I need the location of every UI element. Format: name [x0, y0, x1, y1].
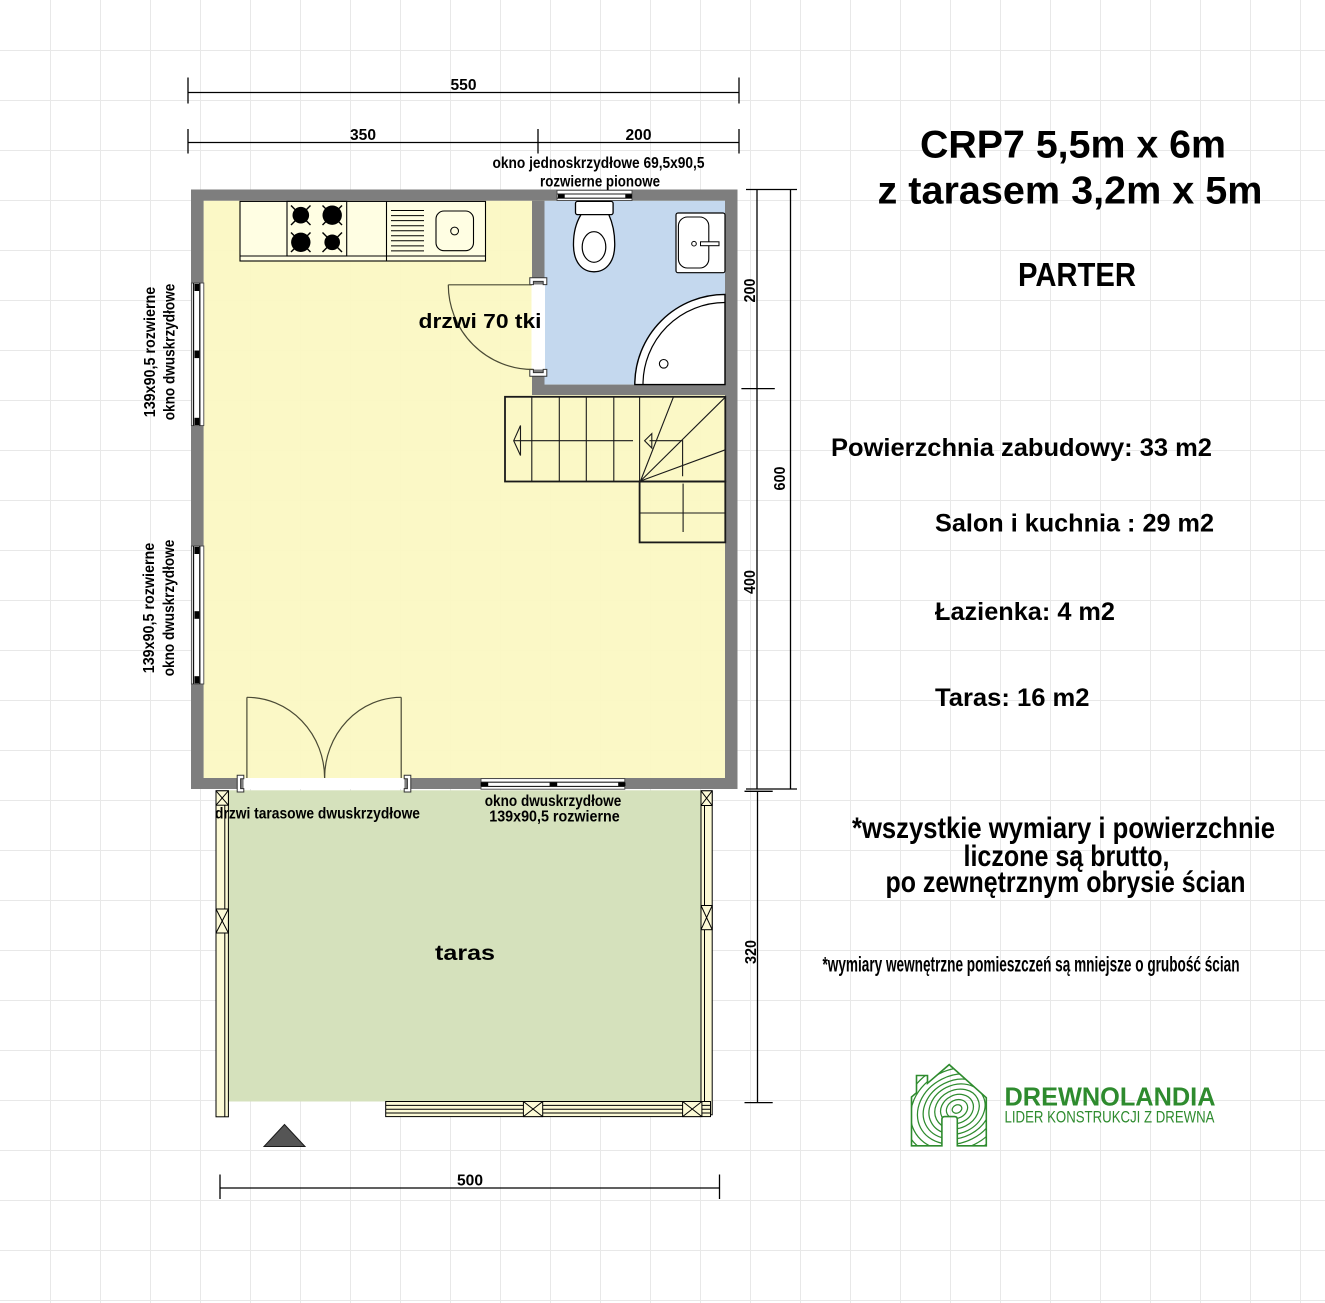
svg-text:200: 200 [626, 127, 652, 144]
svg-text:Taras: 16 m2: Taras: 16 m2 [935, 684, 1090, 712]
svg-text:okno dwuskrzydłowe: okno dwuskrzydłowe [161, 539, 178, 676]
svg-text:Łazienka: 4 m2: Łazienka: 4 m2 [935, 598, 1115, 626]
svg-text:okno dwuskrzydłowe: okno dwuskrzydłowe [485, 793, 622, 810]
svg-text:LIDER KONSTRUKCJI Z DREWNA: LIDER KONSTRUKCJI Z DREWNA [1005, 1109, 1215, 1127]
svg-text:drzwi tarasowe dwuskrzydłowe: drzwi tarasowe dwuskrzydłowe [215, 806, 420, 823]
svg-text:okno jednoskrzydłowe 69,5x90,5: okno jednoskrzydłowe 69,5x90,5 [493, 155, 705, 172]
svg-text:139x90,5 rozwierne: 139x90,5 rozwierne [489, 809, 620, 826]
svg-text:400: 400 [742, 570, 759, 594]
svg-text:Salon i kuchnia : 29 m2: Salon i kuchnia : 29 m2 [935, 510, 1214, 538]
svg-text:139x90,5 rozwierne: 139x90,5 rozwierne [142, 286, 159, 417]
svg-text:350: 350 [350, 127, 376, 144]
svg-text:DREWNOLANDIA: DREWNOLANDIA [1005, 1082, 1216, 1112]
svg-text:500: 500 [457, 1173, 483, 1190]
svg-text:drzwi 70 tki: drzwi 70 tki [419, 311, 542, 333]
svg-text:CRP7 5,5m x 6m: CRP7 5,5m x 6m [920, 124, 1226, 167]
svg-text:z tarasem 3,2m x 5m: z tarasem 3,2m x 5m [878, 170, 1263, 213]
svg-text:PARTER: PARTER [1018, 256, 1136, 293]
svg-text:po zewnętrznym obrysie ścian: po zewnętrznym obrysie ścian [886, 866, 1246, 899]
svg-text:320: 320 [743, 940, 760, 964]
svg-text:200: 200 [742, 278, 759, 302]
svg-text:600: 600 [772, 466, 789, 490]
svg-text:*wymiary wewnętrzne pomieszcze: *wymiary wewnętrzne pomieszczeń są mniej… [823, 954, 1240, 977]
svg-text:okno dwuskrzydłowe: okno dwuskrzydłowe [162, 283, 179, 420]
svg-text:550: 550 [451, 77, 477, 94]
svg-text:Powierzchnia zabudowy: 33 m2: Powierzchnia zabudowy: 33 m2 [831, 434, 1212, 462]
svg-text:139x90,5 rozwierne: 139x90,5 rozwierne [141, 542, 158, 673]
svg-text:rozwierne pionowe: rozwierne pionowe [540, 174, 660, 191]
svg-text:taras: taras [435, 942, 495, 965]
